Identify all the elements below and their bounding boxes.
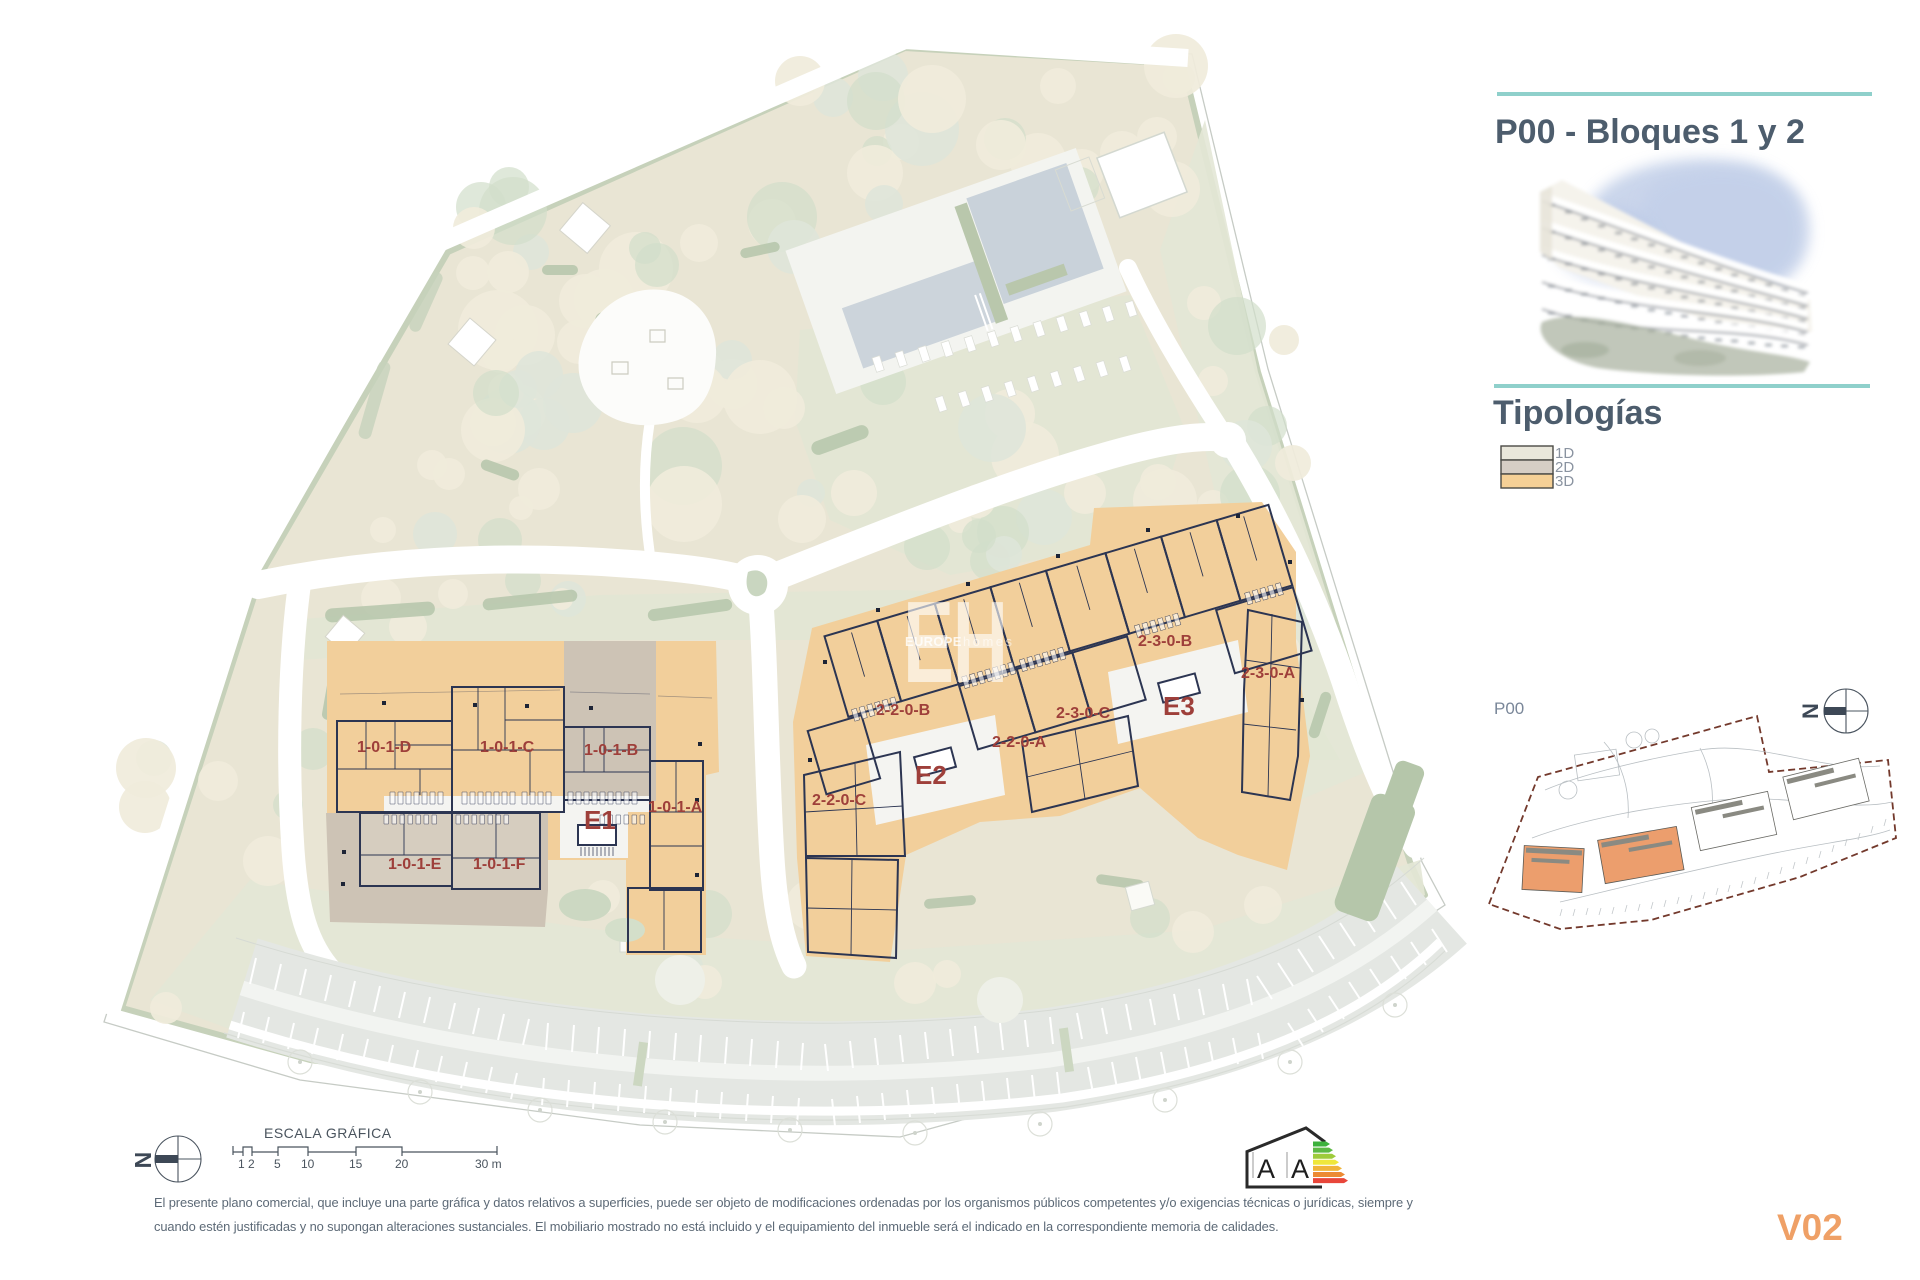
svg-text:E3: E3 [1163,691,1195,721]
svg-text:EUROPE: EUROPE [905,634,962,649]
svg-text:5: 5 [274,1157,281,1171]
svg-text:1-0-1-F: 1-0-1-F [473,856,526,873]
svg-text:1-0-1-B: 1-0-1-B [584,742,638,759]
svg-text:15: 15 [349,1157,363,1171]
svg-text:2-3-0-A: 2-3-0-A [1241,665,1296,682]
svg-text:P00: P00 [1494,699,1524,718]
svg-text:3D: 3D [1555,473,1574,490]
svg-text:N: N [130,1152,156,1169]
svg-text:10: 10 [301,1157,315,1171]
svg-text:ESCALA GRÁFICA: ESCALA GRÁFICA [264,1125,392,1141]
svg-text:homes: homes [963,634,1015,649]
svg-text:2-2-0-C: 2-2-0-C [812,792,867,809]
svg-text:2-2-0-A: 2-2-0-A [992,734,1047,751]
svg-text:El presente plano comercial, q: El presente plano comercial, que incluye… [154,1195,1414,1210]
svg-text:1-0-1-A: 1-0-1-A [648,799,703,816]
svg-text:E1: E1 [584,805,616,835]
svg-text:P00 - Bloques 1 y 2: P00 - Bloques 1 y 2 [1495,113,1805,151]
svg-text:V02: V02 [1777,1207,1843,1248]
svg-text:cuando estén justificadas y no: cuando estén justificadas y no supongan … [154,1219,1279,1234]
svg-text:N: N [1798,703,1823,719]
svg-text:1-0-1-D: 1-0-1-D [357,739,411,756]
svg-text:20: 20 [395,1157,409,1171]
svg-text:1 2: 1 2 [238,1157,255,1171]
svg-text:1-0-1-C: 1-0-1-C [480,739,535,756]
svg-text:2-3-0-C: 2-3-0-C [1056,705,1111,722]
svg-text:A: A [1291,1154,1309,1184]
svg-text:2-3-0-B: 2-3-0-B [1138,633,1192,650]
svg-text:E2: E2 [915,760,947,790]
svg-text:1-0-1-E: 1-0-1-E [388,856,442,873]
svg-text:A: A [1257,1154,1275,1184]
svg-text:30 m: 30 m [475,1157,502,1171]
svg-text:Tipologías: Tipologías [1493,394,1662,432]
